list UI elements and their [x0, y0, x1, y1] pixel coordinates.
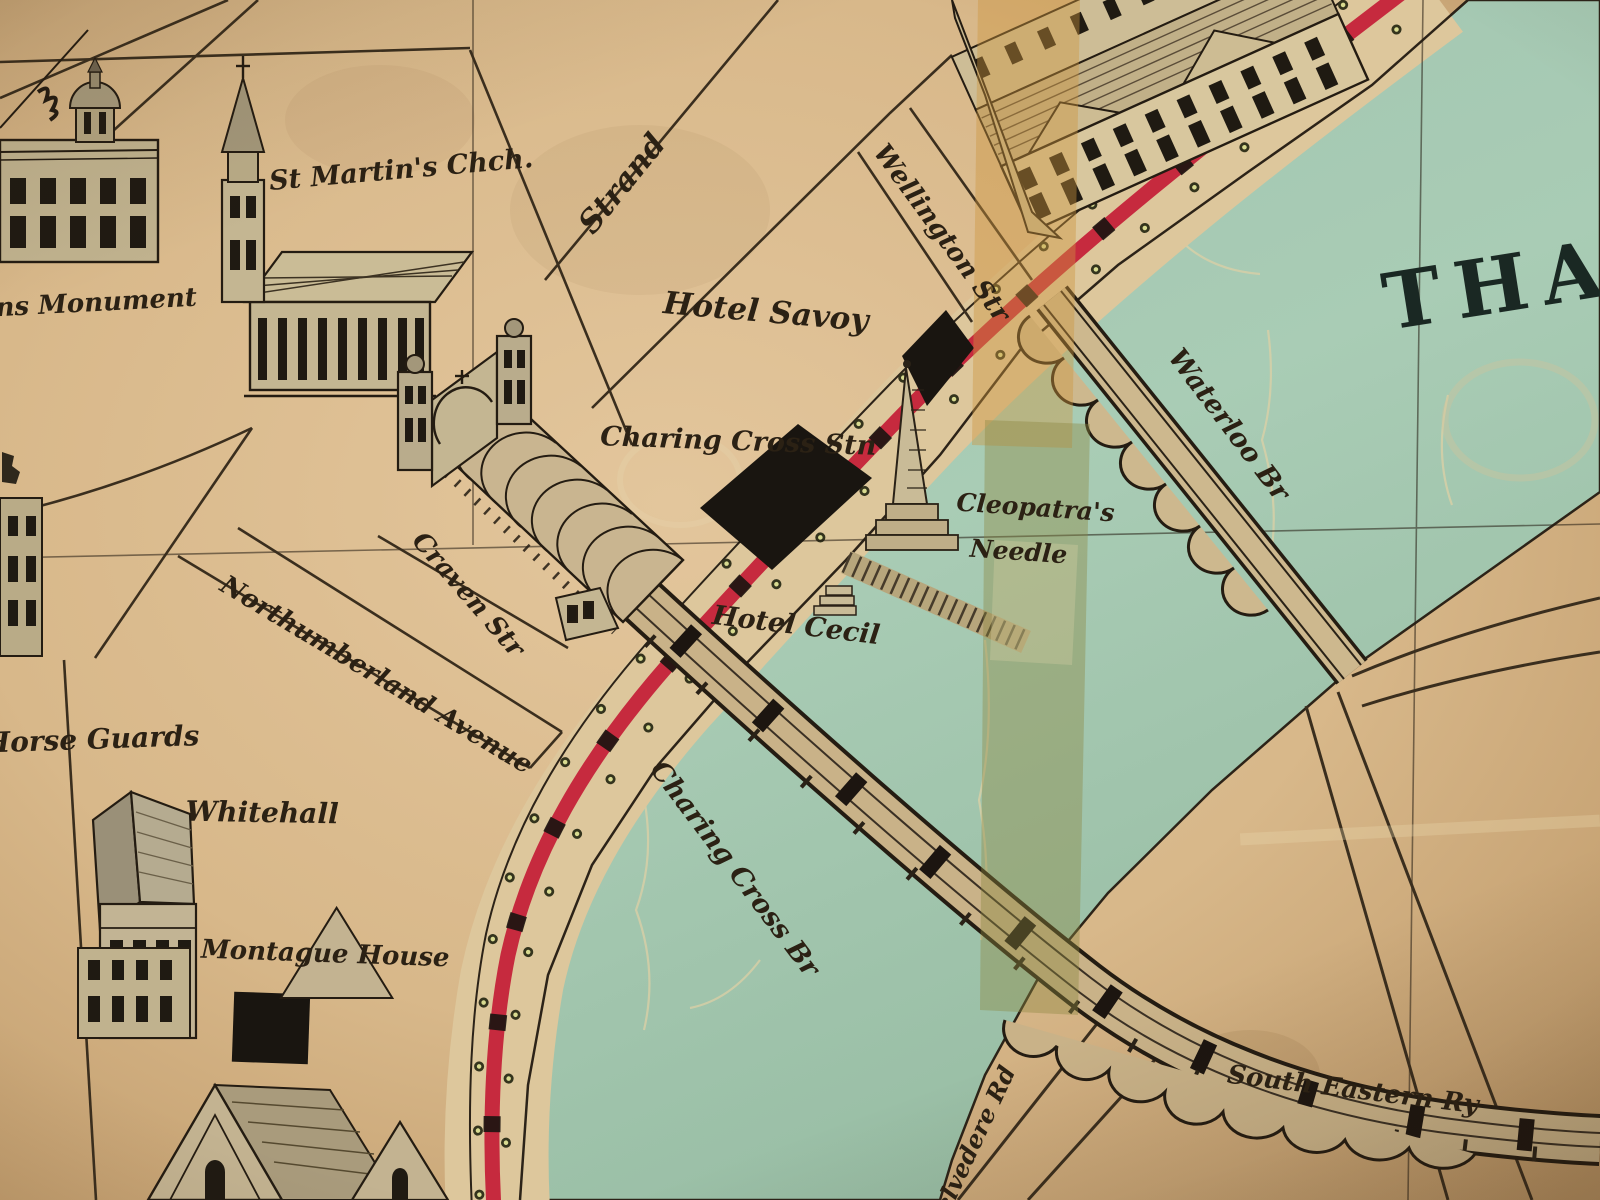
map-canvas: ns Monument St Martin's Chch. Strand Wel… — [0, 0, 1600, 1200]
corner-facade-building — [78, 948, 190, 1038]
horse-guards-partial-building — [0, 498, 42, 656]
station-tower-left — [398, 372, 432, 470]
station-tower-right — [497, 336, 531, 424]
montague-house-block — [232, 992, 310, 1065]
antique-map-photo: ns Monument St Martin's Chch. Strand Wel… — [0, 0, 1600, 1200]
gallery-dome-drum — [76, 106, 114, 142]
church-tower — [222, 180, 264, 302]
label-whitehall: Whitehall — [185, 795, 339, 831]
